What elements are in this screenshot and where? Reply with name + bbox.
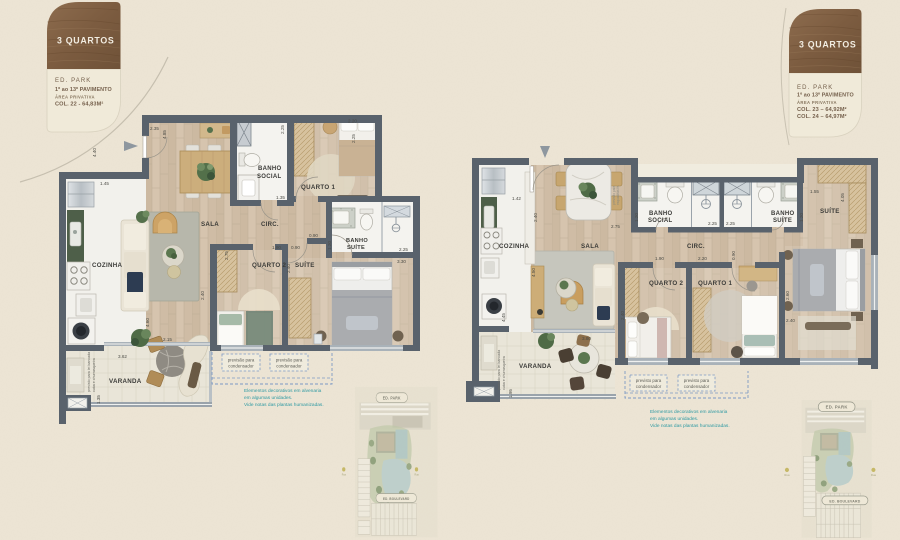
svg-text:QUARTO 1: QUARTO 1 [698,280,733,287]
svg-text:Elementos decorativos em alven: Elementos decorativos em alvenaria [650,409,728,415]
svg-text:4.05: 4.05 [840,193,845,202]
svg-text:condensador: condensador [276,364,302,369]
svg-text:VARANDA: VARANDA [519,363,552,370]
svg-text:3.80: 3.80 [582,336,591,341]
svg-text:0.90: 0.90 [731,251,736,260]
svg-text:SUÍTE: SUÍTE [820,207,840,215]
svg-text:1.55: 1.55 [810,189,819,194]
svg-text:CIRC.: CIRC. [261,222,279,228]
svg-text:2.25: 2.25 [708,221,717,226]
svg-text:previsto para lei bancada: previsto para lei bancada [87,352,91,392]
svg-text:BANHO: BANHO [771,211,795,217]
svg-text:ED. PARK: ED. PARK [826,405,849,410]
svg-text:2.60: 2.60 [785,291,790,300]
svg-text:2.20: 2.20 [698,256,707,261]
svg-text:4.60: 4.60 [145,318,150,327]
svg-text:SUÍTE: SUÍTE [347,243,365,251]
svg-text:CIRC.: CIRC. [687,244,705,250]
svg-text:1.20: 1.20 [799,213,804,222]
svg-text:QUARTO 2: QUARTO 2 [252,262,287,269]
svg-text:2.40: 2.40 [286,264,291,273]
svg-text:Rua: Rua [871,473,876,477]
svg-text:4.40: 4.40 [92,148,97,157]
svg-text:ÁREA PRIVATIVA: ÁREA PRIVATIVA [55,95,95,100]
svg-text:2.40: 2.40 [786,318,795,323]
svg-text:2.15: 2.15 [163,337,172,342]
svg-text:2.40: 2.40 [200,291,205,300]
svg-text:VARANDA: VARANDA [109,378,142,385]
svg-text:COZINHA: COZINHA [499,243,530,250]
svg-text:2.25: 2.25 [399,247,408,252]
svg-text:ED. BOULEVARD: ED. BOULEVARD [383,497,410,501]
svg-text:previsão para: previsão para [276,358,303,363]
svg-text:BANHO: BANHO [346,238,368,244]
svg-text:1.45: 1.45 [100,181,109,186]
svg-text:1º ao 13º PAVIMENTO: 1º ao 13º PAVIMENTO [797,93,854,99]
svg-text:cuba e churrasqueira: cuba e churrasqueira [92,358,96,392]
svg-text:QUARTO 2: QUARTO 2 [649,280,684,287]
svg-text:BANHO: BANHO [649,211,673,217]
svg-text:cuba e churrasqueira: cuba e churrasqueira [502,356,506,390]
svg-text:condensador: condensador [636,384,662,389]
svg-text:3.62: 3.62 [118,354,127,359]
svg-text:Vide notas das plantas humaniz: Vide notas das plantas humanizadas. [650,423,730,429]
svg-text:SUÍTE: SUÍTE [773,216,792,224]
svg-text:1.90: 1.90 [272,245,281,250]
svg-text:2.25: 2.25 [726,221,735,226]
svg-text:4.50: 4.50 [531,268,536,277]
svg-text:1.35: 1.35 [276,195,285,200]
svg-text:QUARTO 1: QUARTO 1 [301,184,336,191]
svg-text:2.75: 2.75 [611,224,620,229]
svg-text:SUÍTE: SUÍTE [295,261,315,269]
svg-text:3.30: 3.30 [397,259,406,264]
svg-text:COL. 24 – 64,97M²: COL. 24 – 64,97M² [797,113,847,120]
svg-text:4.85: 4.85 [162,130,167,139]
svg-text:SOCIAL: SOCIAL [648,218,673,224]
svg-text:COL. 23 – 64,92M²: COL. 23 – 64,92M² [797,106,847,113]
svg-text:ED. PARK: ED. PARK [797,85,833,91]
svg-text:3 QUARTOS: 3 QUARTOS [57,36,114,46]
svg-text:1.20: 1.20 [634,213,639,222]
svg-text:1º ao 13º PAVIMENTO: 1º ao 13º PAVIMENTO [55,87,112,93]
svg-text:0.90: 0.90 [291,245,300,250]
svg-text:Rua: Rua [784,473,789,477]
svg-text:esquadrias fe.: esquadrias fe. [616,185,620,205]
svg-text:3 QUARTOS: 3 QUARTOS [799,40,856,50]
svg-text:2.75: 2.75 [224,251,229,260]
svg-text:0.90: 0.90 [309,233,318,238]
svg-text:Rua: Rua [342,472,347,476]
svg-text:SALA: SALA [581,243,599,250]
svg-text:1.42: 1.42 [512,196,521,201]
svg-text:ÁREA PRIVATIVA: ÁREA PRIVATIVA [797,100,837,105]
svg-text:ED. PARK: ED. PARK [383,395,401,401]
svg-text:4.45: 4.45 [501,313,506,322]
svg-text:Vide notas das plantas humaniz: Vide notas das plantas humanizadas. [244,402,324,408]
svg-text:COL. 22 - 64,83M²: COL. 22 - 64,83M² [55,101,103,108]
svg-text:1.95: 1.95 [508,389,513,398]
svg-text:previsto para: previsto para [684,378,710,383]
svg-text:previsto para lei bancada: previsto para lei bancada [497,350,501,390]
svg-text:Rua: Rua [414,472,419,476]
svg-text:2.40: 2.40 [533,213,538,222]
svg-text:previsão para: previsão para [228,358,255,363]
svg-text:ED. PARK: ED. PARK [55,78,91,84]
svg-text:1.20: 1.20 [327,241,332,250]
svg-text:previsto para: previsto para [636,378,662,383]
svg-text:SALA: SALA [201,221,219,228]
svg-text:em algumas unidades.: em algumas unidades. [244,395,292,401]
svg-text:2.40: 2.40 [620,311,625,320]
svg-text:ED. BOULEVARD: ED. BOULEVARD [829,499,860,503]
svg-text:1.35: 1.35 [96,395,101,404]
svg-text:condensador: condensador [228,364,254,369]
svg-text:BANHO: BANHO [258,166,282,172]
svg-text:condensador: condensador [684,384,710,389]
svg-text:SOCIAL: SOCIAL [257,174,282,180]
svg-text:COZINHA: COZINHA [92,262,123,269]
svg-text:em algumas unidades.: em algumas unidades. [650,416,698,422]
svg-text:2.25: 2.25 [280,125,285,134]
svg-text:2.25: 2.25 [351,134,356,143]
svg-text:Elementos decorativos em alven: Elementos decorativos em alvenaria [244,388,322,394]
svg-text:2.35: 2.35 [150,126,159,131]
svg-text:2.20: 2.20 [348,119,357,124]
svg-text:1.90: 1.90 [655,256,664,261]
